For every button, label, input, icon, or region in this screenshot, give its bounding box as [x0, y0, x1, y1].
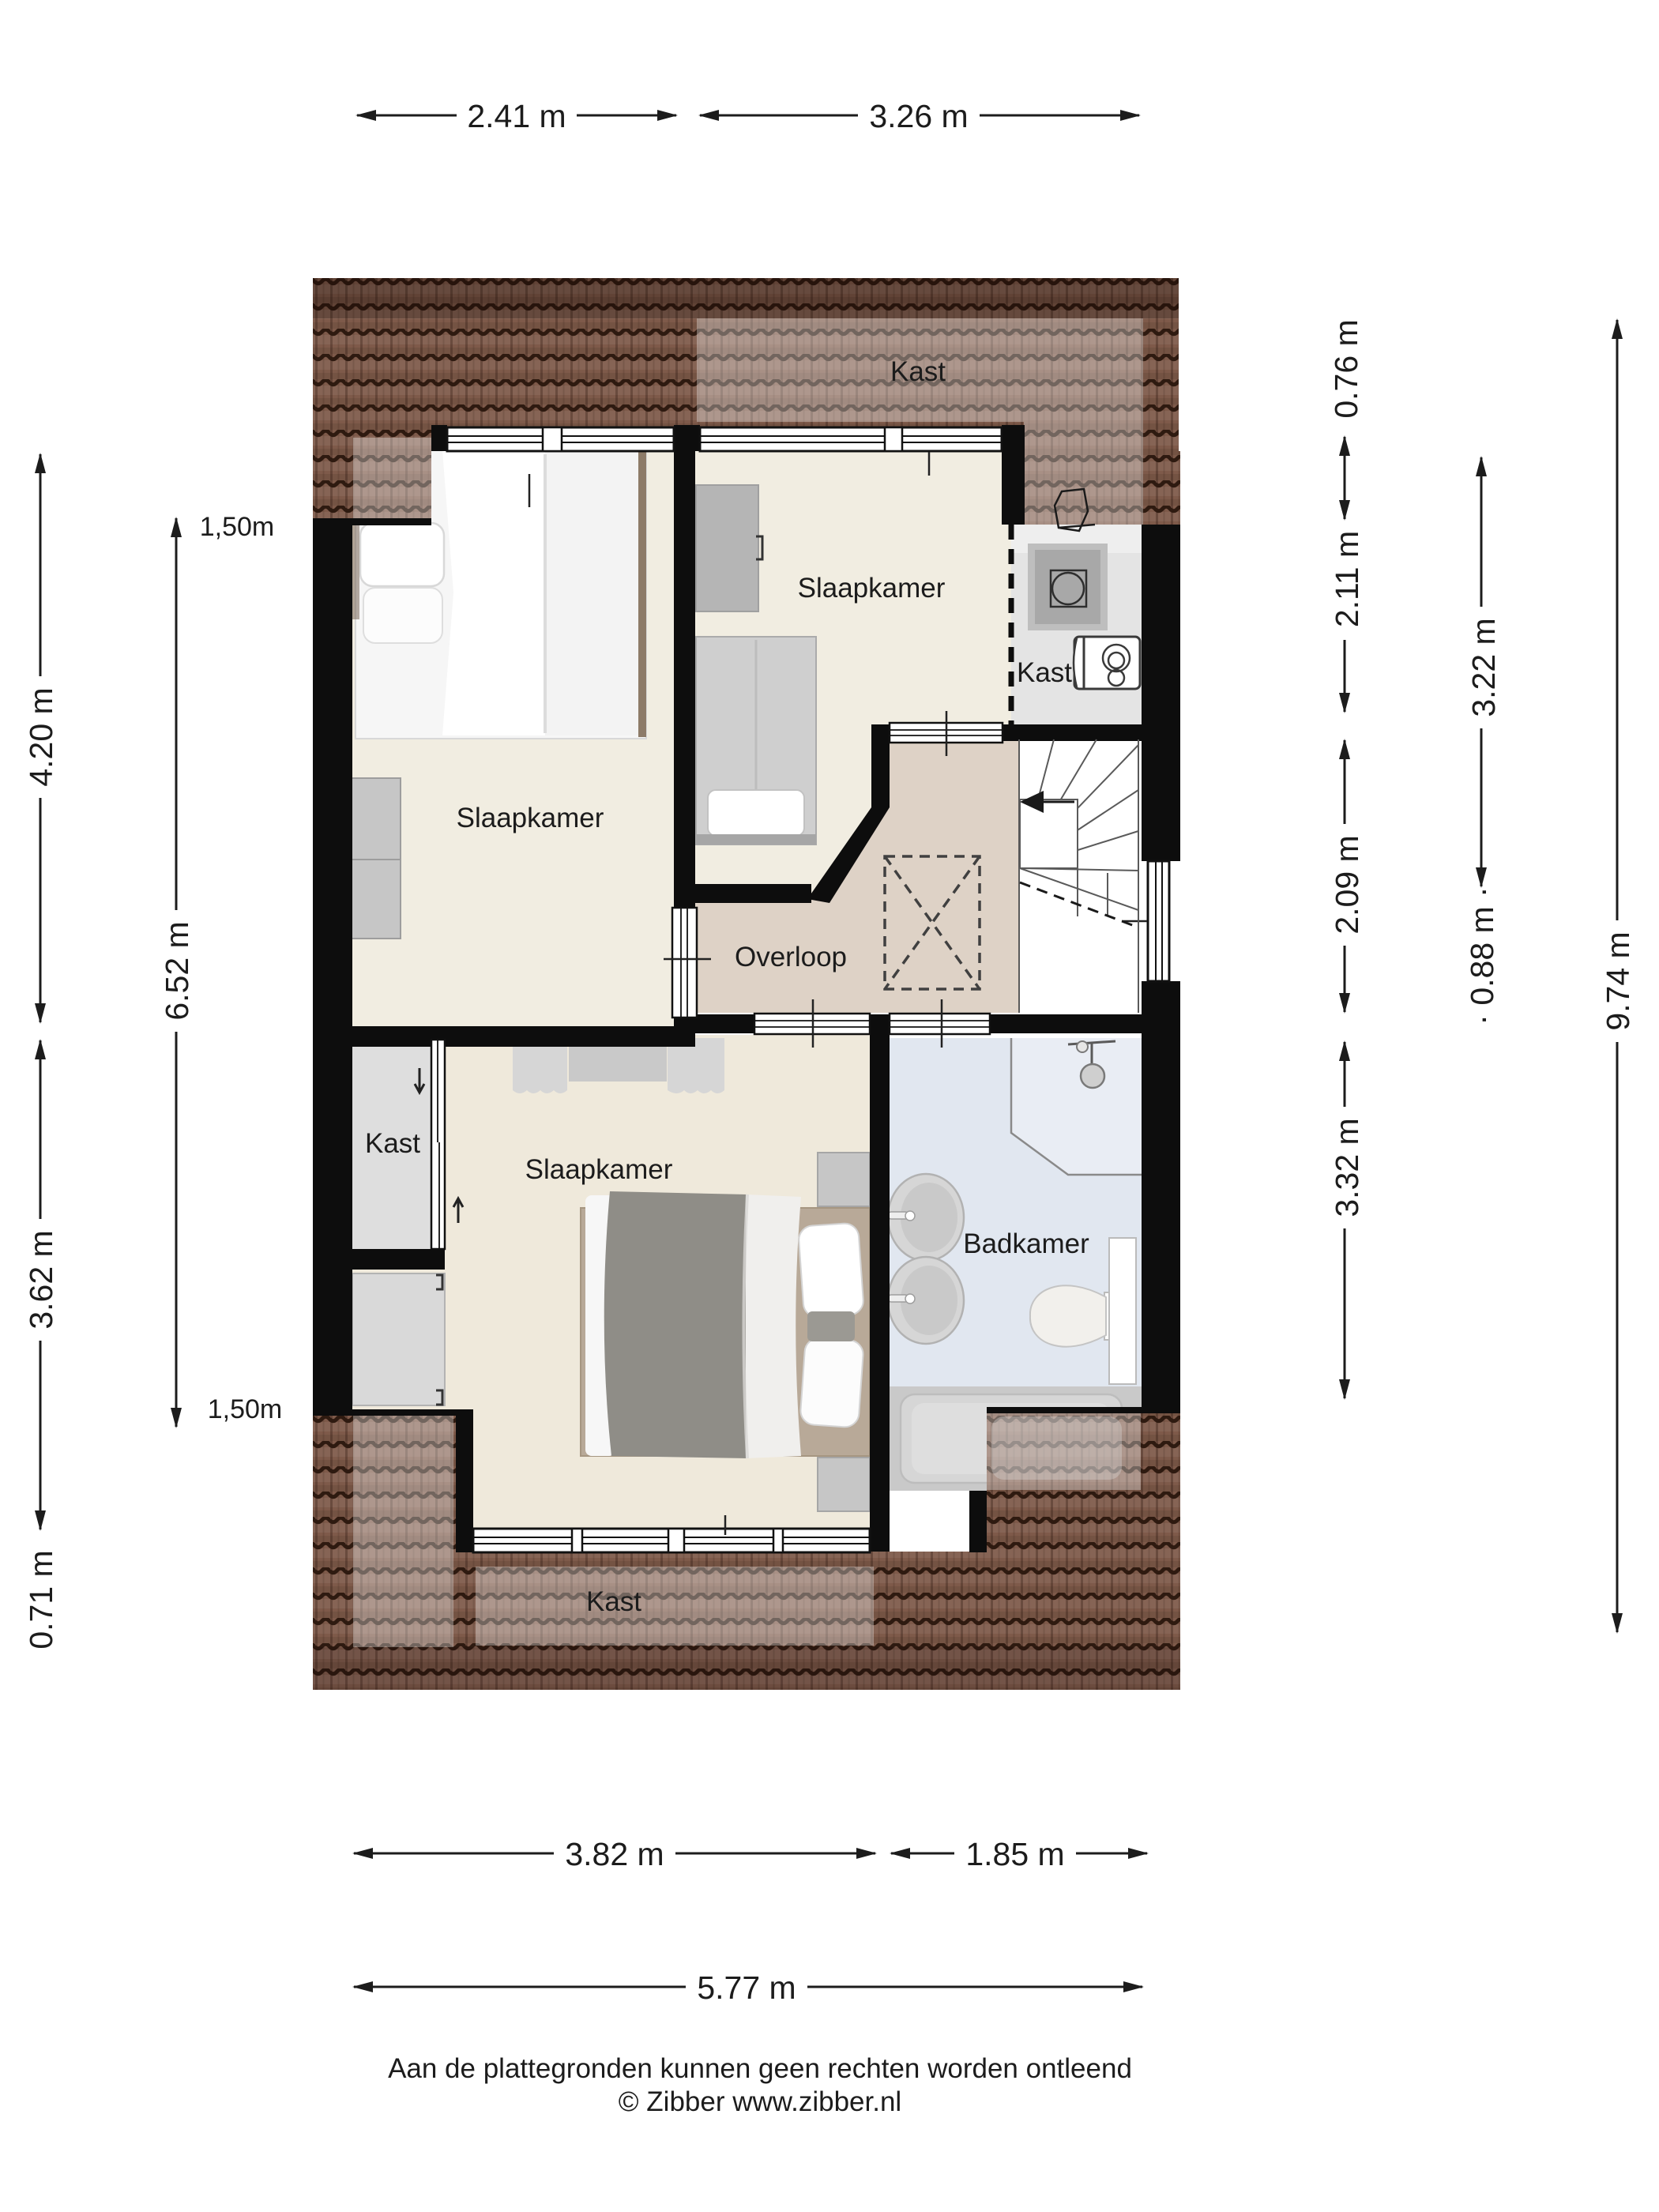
svg-text:3.32 m: 3.32 m: [1329, 1118, 1365, 1217]
svg-text:Slaapkamer: Slaapkamer: [525, 1154, 673, 1185]
svg-text:3.82 m: 3.82 m: [565, 1836, 664, 1872]
svg-text:5.77 m: 5.77 m: [697, 1969, 796, 2006]
svg-text:Aan de plattegronden kunnen ge: Aan de plattegronden kunnen geen rechten…: [388, 2053, 1132, 2084]
svg-text:3.26 m: 3.26 m: [869, 98, 968, 134]
svg-text:9.74 m: 9.74 m: [1600, 931, 1636, 1030]
svg-text:0.76 m: 0.76 m: [1328, 319, 1364, 418]
svg-text:Slaapkamer: Slaapkamer: [798, 573, 946, 604]
svg-text:Badkamer: Badkamer: [963, 1228, 1089, 1259]
svg-text:1.85 m: 1.85 m: [965, 1836, 1064, 1872]
svg-text:Overloop: Overloop: [735, 942, 847, 972]
svg-text:Kast: Kast: [890, 356, 946, 387]
svg-text:2.09 m: 2.09 m: [1329, 835, 1365, 934]
svg-text:Kast: Kast: [365, 1128, 420, 1159]
svg-text:1,50m: 1,50m: [208, 1394, 283, 1424]
svg-text:0.71 m: 0.71 m: [23, 1550, 59, 1649]
svg-text:4.20 m: 4.20 m: [23, 687, 59, 786]
svg-text:© Zibber www.zibber.nl: © Zibber www.zibber.nl: [619, 2086, 901, 2117]
svg-text:6.52 m: 6.52 m: [159, 921, 195, 1020]
svg-text:3.22 m: 3.22 m: [1465, 618, 1502, 717]
svg-text:1,50m: 1,50m: [200, 512, 275, 542]
svg-text:3.62 m: 3.62 m: [23, 1230, 59, 1329]
svg-text:Kast: Kast: [586, 1586, 641, 1617]
svg-text:2.41 m: 2.41 m: [467, 98, 566, 134]
svg-text:· 0.88 m ·: · 0.88 m ·: [1464, 886, 1500, 1025]
svg-text:2.11 m: 2.11 m: [1329, 531, 1365, 627]
svg-text:Slaapkamer: Slaapkamer: [457, 803, 604, 833]
svg-text:Kast: Kast: [1017, 657, 1072, 688]
